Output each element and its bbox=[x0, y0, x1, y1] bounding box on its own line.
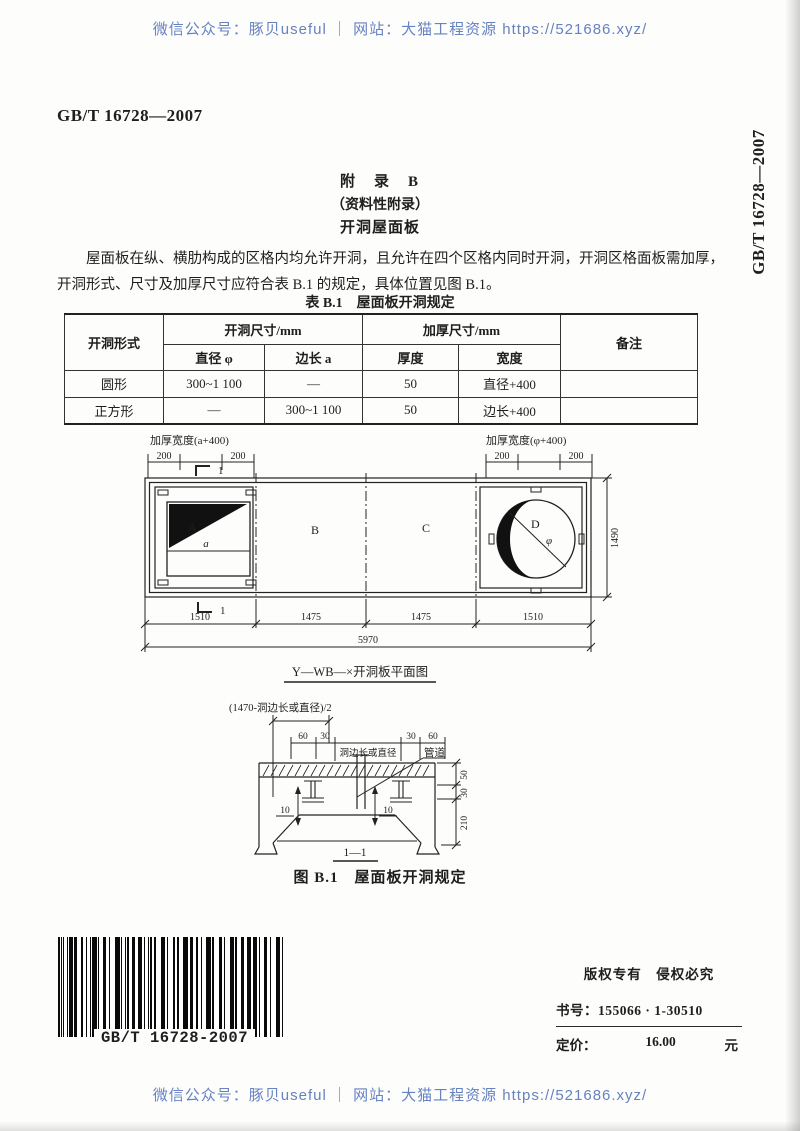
th-width: 宽度 bbox=[459, 344, 561, 370]
book-number-row: 书号：155066 · 1-30510 bbox=[556, 999, 742, 1027]
pipe-callout-label: 管道 bbox=[424, 746, 445, 759]
table-row-circle: 圆形 300~1 100 — 50 直径+400 bbox=[65, 370, 698, 397]
appendix-subtitle: （资料性附录） bbox=[0, 194, 760, 214]
offset-dim-label: (1470-洞边长或直径)/2 bbox=[229, 701, 332, 714]
dim-5970: 5970 bbox=[358, 635, 378, 646]
right-thicken-dimension: 加厚宽度(φ+400) 200 200 bbox=[486, 433, 592, 478]
price-row: 定价： 16.00 元 bbox=[556, 1034, 742, 1054]
body-paragraph: 屋面板在纵、横肋构成的区格内均允许开洞，且允许在四个区格内同时开洞，开洞区格面板… bbox=[57, 246, 751, 298]
appendix-section-title: 开洞屋面板 bbox=[0, 216, 760, 237]
region-label-c: C bbox=[422, 521, 430, 535]
section-mark-number: 1 bbox=[220, 605, 226, 617]
figure-caption: 图 B.1 屋面板开洞规定 bbox=[0, 866, 760, 887]
circle-opening-shading bbox=[497, 500, 536, 578]
doc-number: GB/T 16728—2007 bbox=[57, 106, 203, 126]
cell-diameter: — bbox=[164, 397, 265, 424]
dim-50: 50 bbox=[460, 770, 470, 780]
bottom-dimension-chain: 1510 1475 1475 1510 5970 bbox=[141, 597, 595, 652]
book-number-label: 书号： bbox=[556, 1003, 598, 1018]
plan-diagram: a φ A B C D 加厚宽度(a+400) bbox=[118, 428, 663, 690]
cell-thickness: 50 bbox=[363, 370, 459, 397]
section-cut-mark-top: 1 bbox=[196, 465, 224, 477]
watermark-bottom: 微信公众号：豚贝useful ｜ 网站：大猫工程资源 https://52168… bbox=[0, 1084, 800, 1105]
section-diagram: (1470-洞边长或直径)/2 60 30 30 60 洞边长或直径 管道 bbox=[205, 697, 515, 865]
barcode: GB/T 16728-2007 bbox=[58, 937, 283, 1037]
grid-centerlines bbox=[256, 473, 476, 603]
dim-30: 30 bbox=[460, 788, 470, 798]
th-thicken-size-group: 加厚尺寸/mm bbox=[363, 314, 561, 344]
scan-shadow-right bbox=[785, 0, 800, 1131]
dim-10-left: 10 bbox=[276, 786, 301, 826]
dim-1510: 1510 bbox=[523, 612, 543, 623]
plan-caption: Y—WB—×开洞板平面图 bbox=[292, 665, 428, 679]
dim-60: 60 bbox=[428, 732, 438, 742]
scanned-standard-page: 微信公众号：豚贝useful ｜ 网站：大猫工程资源 https://52168… bbox=[0, 0, 800, 1131]
cell-thickness: 50 bbox=[363, 397, 459, 424]
cell-diameter: 300~1 100 bbox=[164, 370, 265, 397]
cell-width: 直径+400 bbox=[459, 370, 561, 397]
square-side-dim: a bbox=[203, 538, 209, 550]
copyright-notice: 版权专有 侵权必究 bbox=[556, 963, 742, 983]
dim-200: 200 bbox=[157, 451, 172, 462]
dim-1475: 1475 bbox=[411, 612, 431, 623]
dim-10-right: 10 bbox=[372, 786, 397, 826]
table-title: 表 B.1 屋面板开洞规定 bbox=[0, 292, 760, 312]
cell-remark bbox=[561, 397, 698, 424]
height-dimension: 1490 bbox=[591, 474, 621, 601]
dim-60: 60 bbox=[298, 732, 308, 742]
th-side-length: 边长 a bbox=[265, 344, 363, 370]
cell-side: — bbox=[265, 370, 363, 397]
paragraph-line-1: 屋面板在纵、横肋构成的区格内均允许开洞，且允许在四个区格内同时开洞，开洞区格面板… bbox=[57, 246, 751, 272]
section-height-dimensions: 50 30 210 bbox=[437, 759, 470, 849]
circle-diameter-dim: φ bbox=[546, 535, 552, 547]
scan-shadow-bottom bbox=[0, 1121, 800, 1131]
th-opening-size-group: 开洞尺寸/mm bbox=[164, 314, 363, 344]
th-diameter: 直径 φ bbox=[164, 344, 265, 370]
price-block: 版权专有 侵权必究 书号：155066 · 1-30510 定价： 16.00 … bbox=[556, 963, 742, 1054]
panel-outline bbox=[145, 478, 591, 597]
dim-200: 200 bbox=[495, 451, 510, 462]
dim-1475: 1475 bbox=[301, 612, 321, 623]
barcode-label: GB/T 16728-2007 bbox=[94, 1029, 255, 1047]
section-caption: 1—1 bbox=[344, 847, 367, 859]
dim-30: 30 bbox=[320, 732, 330, 742]
edge-dimension-chain: 60 30 30 60 洞边长或直径 bbox=[291, 732, 445, 761]
price-label: 定价： bbox=[556, 1034, 597, 1054]
watermark-top: 微信公众号：豚贝useful ｜ 网站：大猫工程资源 https://52168… bbox=[0, 18, 800, 39]
left-thicken-label: 加厚宽度(a+400) bbox=[150, 433, 229, 447]
table-row-square: 正方形 — 300~1 100 50 边长+400 bbox=[65, 397, 698, 424]
cell-width: 边长+400 bbox=[459, 397, 561, 424]
cell-side: 300~1 100 bbox=[265, 397, 363, 424]
dim-200: 200 bbox=[569, 451, 584, 462]
left-thicken-dimension: 加厚宽度(a+400) 200 200 bbox=[148, 433, 254, 478]
book-number-value: 155066 · 1-30510 bbox=[598, 1003, 703, 1018]
offset-dimension bbox=[269, 715, 333, 797]
region-label-b: B bbox=[311, 523, 319, 537]
section-mark-number: 1 bbox=[218, 465, 224, 477]
dim-10: 10 bbox=[280, 806, 290, 816]
dim-10: 10 bbox=[383, 806, 393, 816]
th-thickness: 厚度 bbox=[363, 344, 459, 370]
dim-200: 200 bbox=[231, 451, 246, 462]
circular-opening: φ bbox=[489, 487, 584, 593]
right-thicken-label: 加厚宽度(φ+400) bbox=[486, 433, 567, 447]
square-opening: a bbox=[158, 490, 256, 585]
opening-dim-label: 洞边长或直径 bbox=[339, 747, 397, 759]
price-value: 16.00 bbox=[645, 1034, 675, 1054]
cell-shape: 圆形 bbox=[65, 370, 164, 397]
cell-remark bbox=[561, 370, 698, 397]
opening-spec-table: 开洞形式 开洞尺寸/mm 加厚尺寸/mm 备注 直径 φ 边长 a 厚度 宽度 … bbox=[64, 313, 698, 425]
th-remark: 备注 bbox=[561, 314, 698, 370]
dim-210: 210 bbox=[460, 816, 470, 831]
appendix-title: 附 录 B bbox=[0, 170, 760, 191]
region-label-d: D bbox=[531, 517, 540, 531]
region-label-a: A bbox=[188, 520, 197, 534]
slab-hatching bbox=[263, 765, 429, 776]
dim-1510: 1510 bbox=[190, 612, 210, 623]
cell-shape: 正方形 bbox=[65, 397, 164, 424]
dim-30: 30 bbox=[406, 732, 416, 742]
price-unit: 元 bbox=[725, 1034, 739, 1054]
th-opening-shape: 开洞形式 bbox=[65, 314, 164, 370]
dim-1490: 1490 bbox=[610, 528, 621, 548]
